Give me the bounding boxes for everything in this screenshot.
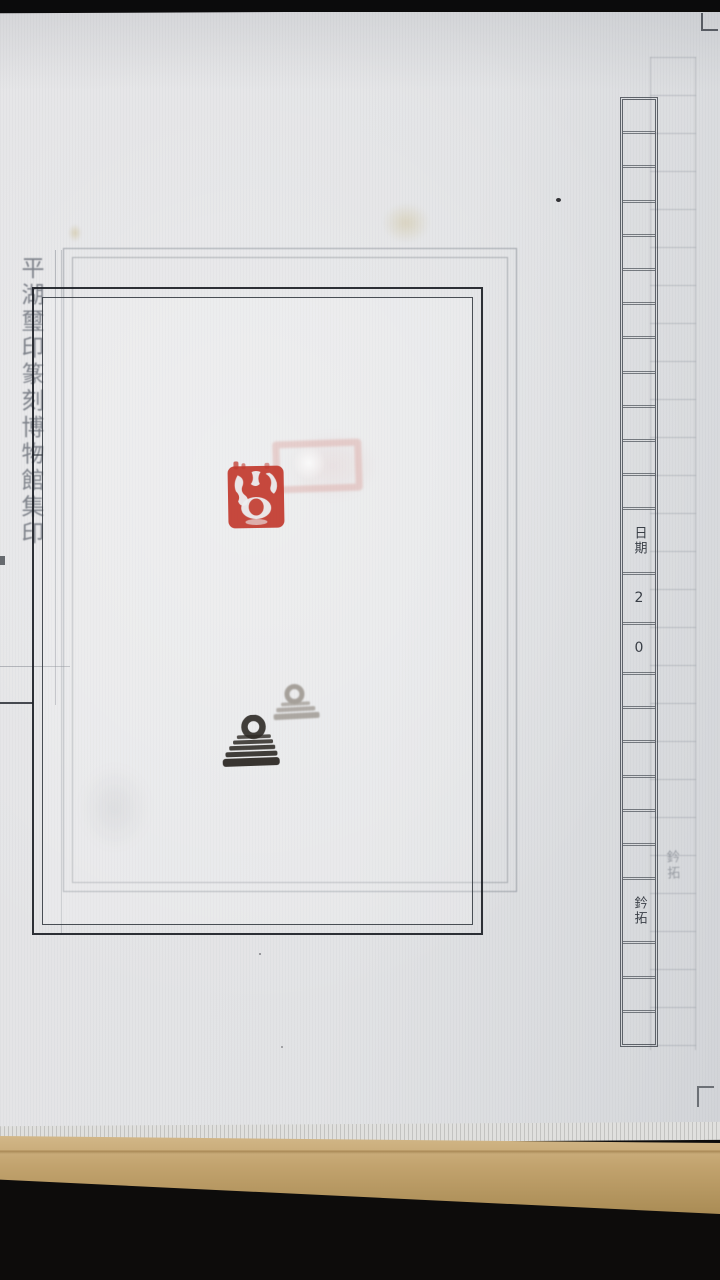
red-seal-impression: [226, 460, 287, 531]
left-rule-line: [0, 702, 33, 704]
seal-knob-rubbing-dark: [220, 714, 280, 768]
photo-canvas: 鈐拓 平湖璽印篆刻博物館集印: [0, 0, 720, 1280]
record-cell: [623, 203, 655, 237]
record-cell: [623, 305, 655, 339]
ink-speck: [556, 198, 561, 202]
album-board-edge: [0, 1136, 720, 1214]
record-cell: [623, 979, 655, 1013]
sheet-frame-outer: [32, 287, 483, 935]
corner-mark-top-right: [701, 13, 718, 31]
record-cell: [623, 1013, 655, 1044]
record-cell: [623, 374, 655, 408]
record-cell: [623, 944, 655, 978]
sheet-frame-inner: [42, 297, 473, 925]
edge-dash-mark: [0, 556, 5, 565]
record-cell: [623, 743, 655, 777]
seal-ink-drip: [233, 461, 238, 469]
record-cell-stamp-rubbing-label: 鈐拓: [623, 880, 655, 944]
record-cell-year-digit: 0: [623, 625, 655, 675]
record-column: 日期 2 0 鈐拓: [620, 97, 658, 1047]
seal-ink-drip: [241, 463, 245, 469]
seal-knob-rubbing-faint: [271, 683, 321, 725]
ghost-stamp-rubbing-label: 鈐拓: [661, 850, 681, 883]
knob-ring: [287, 686, 303, 702]
knob-steps: [222, 734, 280, 767]
record-cell: [623, 846, 655, 880]
record-cell: [623, 812, 655, 846]
knob-steps: [273, 701, 320, 720]
record-cell: [623, 778, 655, 812]
corner-mark-bottom-right: [697, 1086, 714, 1107]
knob-ring: [244, 718, 263, 737]
record-cell: [623, 100, 655, 134]
seal-ink-drip: [264, 463, 269, 469]
ink-speck: [281, 1046, 283, 1048]
ink-speck: [259, 953, 261, 955]
record-cell: [623, 237, 655, 271]
record-cell: [623, 675, 655, 709]
record-cell: [623, 442, 655, 476]
yellow-stain: [382, 203, 430, 243]
record-cell: [623, 168, 655, 202]
record-cell-year-digit: 2: [623, 575, 655, 625]
record-cell: [623, 476, 655, 510]
record-cell: [623, 339, 655, 373]
yellow-stain-small: [68, 224, 82, 242]
record-cell: [623, 134, 655, 168]
record-cell: [623, 271, 655, 305]
record-cell: [623, 408, 655, 442]
record-cell-date-label: 日期: [623, 510, 655, 574]
record-cell: [623, 709, 655, 743]
